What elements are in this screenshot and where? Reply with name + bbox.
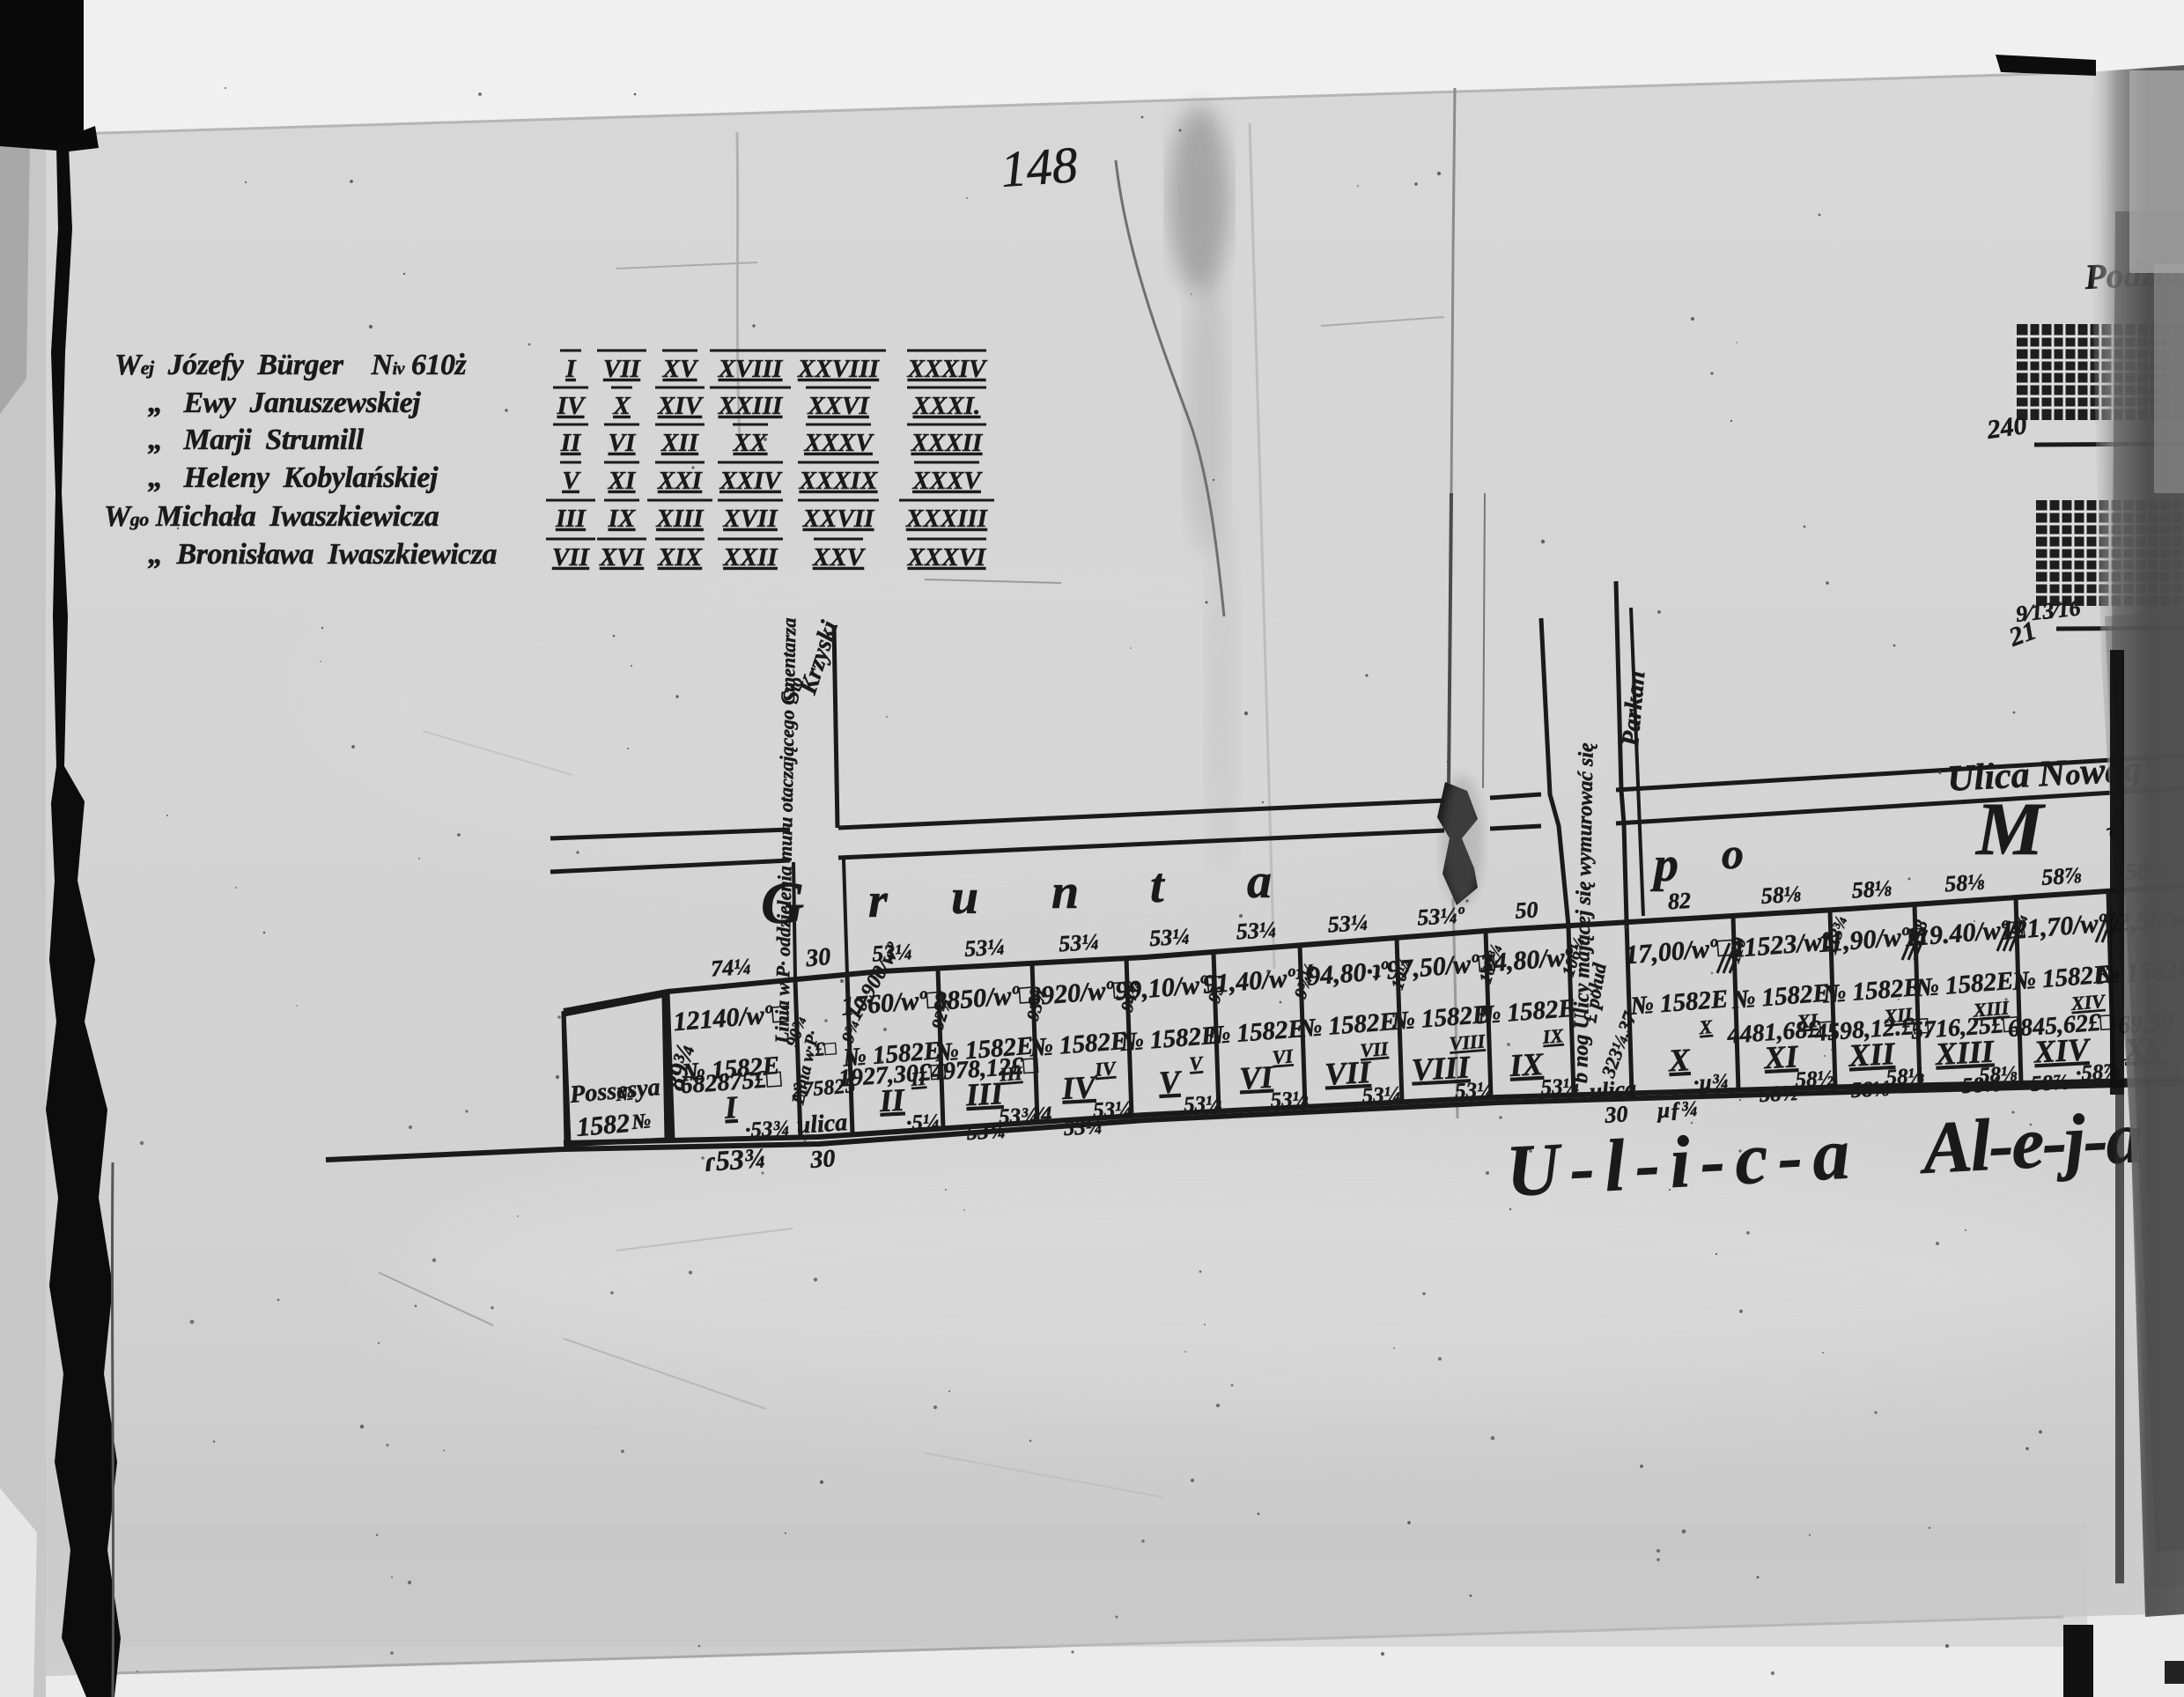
svg-text:IX: IX — [1541, 1024, 1565, 1048]
svg-text:53¼: 53¼ — [1063, 1115, 1103, 1140]
svg-text:XXXIV: XXXIV — [907, 355, 988, 383]
svg-text:XXXV: XXXV — [911, 467, 983, 495]
svg-text:u: u — [951, 870, 978, 925]
svg-text:XXXII: XXXII — [911, 429, 984, 457]
svg-text:XXI: XXI — [657, 467, 704, 495]
svg-text:58½: 58½ — [1759, 1081, 1798, 1107]
svg-text:XIV: XIV — [657, 392, 705, 420]
svg-text:„ Marji Strumill: „ Marji Strumill — [148, 424, 365, 456]
svg-text:t: t — [1150, 859, 1165, 913]
svg-text:1582: 1582 — [576, 1109, 631, 1142]
svg-text:Al-e-j-a: Al-e-j-a — [1916, 1096, 2145, 1190]
svg-text:XVIII: XVIII — [718, 355, 784, 383]
svg-text:XXXVI: XXXVI — [907, 543, 987, 572]
svg-text:53¼: 53¼ — [963, 933, 1005, 962]
svg-text:XXV: XXV — [812, 543, 867, 572]
svg-text:Wej Józefy Bürger Niv 610: Wej Józefy Bürger Niv 610ż — [114, 349, 468, 381]
svg-text:XX: XX — [733, 429, 768, 457]
svg-text:p: p — [1650, 837, 1679, 892]
svg-text:II: II — [560, 429, 582, 457]
svg-text:Wgo Michała Iwaszkiewicza: Wgo Michała Iwaszkiewicza — [104, 500, 439, 533]
svg-text:VI: VI — [1272, 1044, 1295, 1068]
svg-text:XXVII: XXVII — [802, 505, 875, 533]
svg-text:IV: IV — [1093, 1057, 1118, 1081]
svg-text:58⅛: 58⅛ — [1885, 1064, 1925, 1089]
svg-text:53¼: 53¼ — [1183, 1091, 1222, 1117]
svg-text:53¼: 53¼ — [1148, 923, 1190, 951]
svg-text:µƒ¾: µƒ¾ — [1656, 1097, 1698, 1123]
svg-text:IX: IX — [608, 505, 636, 533]
svg-text:ulica: ulica — [1589, 1075, 1637, 1104]
svg-text:II: II — [878, 1082, 907, 1119]
svg-text:53¾⁄4: 53¾⁄4 — [998, 1103, 1052, 1129]
svg-text:„ Bronisława Iwaszkiewicza: „ Bronisława Iwaszkiewicza — [148, 538, 497, 571]
svg-text:58⅛: 58⅛ — [1850, 1077, 1890, 1103]
svg-text:58⅛: 58⅛ — [1851, 875, 1893, 904]
svg-text:·µ¾: ·µ¾ — [1693, 1070, 1729, 1096]
svg-text:I: I — [564, 355, 577, 383]
svg-text:XXVIII: XXVIII — [797, 355, 881, 383]
svg-text:53¼: 53¼ — [1540, 1074, 1580, 1100]
svg-text:ulica: ulica — [796, 1109, 849, 1140]
svg-text:XIX: XIX — [657, 543, 703, 572]
svg-text:M: M — [1974, 786, 2046, 871]
svg-text:XXIII: XXIII — [718, 392, 784, 420]
svg-text:30: 30 — [804, 943, 832, 972]
svg-text:XXIV: XXIV — [719, 467, 783, 495]
svg-text:IV: IV — [557, 392, 587, 420]
svg-text:XXXI.: XXXI. — [912, 392, 981, 420]
svg-text:53¼: 53¼ — [1327, 910, 1369, 938]
svg-text:82: 82 — [1667, 888, 1692, 915]
svg-text:53¼: 53¼ — [1270, 1087, 1310, 1112]
svg-text:53¾: 53¾ — [966, 1119, 1006, 1145]
svg-text:30: 30 — [808, 1145, 836, 1174]
svg-text:58⅞: 58⅞ — [2040, 862, 2082, 890]
svg-text:XVI: XVI — [599, 543, 646, 572]
svg-text:n: n — [1051, 865, 1079, 919]
svg-text:VI: VI — [609, 429, 637, 457]
svg-text:a: a — [1247, 854, 1272, 909]
svg-text:240: 240 — [1984, 410, 2028, 445]
svg-text:53¼: 53¼ — [1361, 1082, 1401, 1108]
svg-text:XVII: XVII — [722, 505, 778, 533]
svg-text:XXII: XXII — [722, 543, 778, 572]
svg-text:XXXIX: XXXIX — [799, 467, 878, 495]
svg-text:VII: VII — [552, 543, 591, 572]
svg-text:XI: XI — [608, 467, 637, 495]
svg-text:53¼º: 53¼º — [1416, 902, 1465, 930]
svg-text:№: № — [630, 1110, 652, 1134]
svg-text:58⅛: 58⅛ — [1760, 881, 1802, 909]
svg-text:XIII: XIII — [655, 505, 705, 533]
svg-text:53¼: 53¼ — [1236, 917, 1277, 945]
svg-text:·5¼: ·5¼ — [905, 1110, 940, 1135]
svg-text:58⅛: 58⅛ — [1944, 869, 1985, 897]
svg-text:··58⅞: ··58⅞ — [2019, 1071, 2070, 1097]
svg-text:№: № — [614, 1081, 634, 1105]
svg-text:V: V — [562, 467, 581, 495]
svg-text:XXVI: XXVI — [807, 392, 870, 420]
svg-text:„ Heleny Kobylańskiej: „ Heleny Kobylańskiej — [148, 461, 439, 494]
svg-text:XXXV: XXXV — [803, 429, 874, 457]
svg-text:XV: XV — [662, 355, 699, 383]
svg-text:XII: XII — [660, 429, 700, 457]
svg-text:„ Ewy Januszewskiej: „ Ewy Januszewskiej — [148, 387, 421, 419]
svg-text:74¼: 74¼ — [710, 954, 751, 982]
svg-text:·53¾: ·53¾ — [744, 1117, 789, 1143]
svg-text:VII: VII — [603, 355, 642, 383]
svg-text:ɾ53¾: ɾ53¾ — [703, 1141, 766, 1177]
svg-text:53¼: 53¼ — [1454, 1078, 1494, 1103]
svg-text:50: 50 — [1515, 896, 1539, 924]
svg-text:58½: 58½ — [1795, 1066, 1834, 1092]
svg-text:58⅛: 58⅛ — [1961, 1073, 2001, 1098]
svg-text:148: 148 — [999, 136, 1079, 198]
svg-text:III: III — [555, 505, 587, 533]
svg-text:X: X — [1667, 1042, 1692, 1078]
svg-text:53¼: 53¼ — [1058, 929, 1099, 957]
svg-text:£□: £□ — [813, 1037, 837, 1060]
svg-text:XXXIII: XXXIII — [905, 505, 989, 533]
svg-text:30: 30 — [1603, 1101, 1628, 1128]
svg-text:X: X — [612, 392, 631, 420]
svg-text:r: r — [868, 874, 889, 928]
svg-text:G: G — [761, 869, 804, 936]
svg-text:o: o — [1722, 829, 1744, 878]
